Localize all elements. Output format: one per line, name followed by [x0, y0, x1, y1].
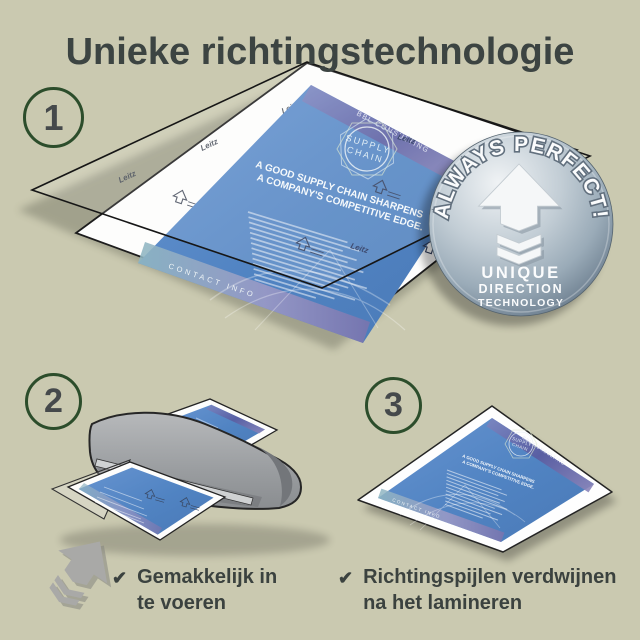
- checklist-item-easy-feed: ✔ Gemakkelijk in te voeren: [112, 564, 294, 616]
- page-title: Unieke richtingstechnologie: [0, 31, 640, 74]
- step-1-number-badge: 1: [23, 87, 84, 148]
- badge-line-technology: TECHNOLOGY: [478, 297, 564, 309]
- step-2-number-badge: 2: [25, 373, 82, 430]
- illustration-layer: Leitz Leitz Leitz BBL CONSULTING CONTACT…: [0, 0, 640, 640]
- checklist-item-label: Gemakkelijk in te voeren: [137, 564, 294, 616]
- badge-line-direction: DIRECTION: [479, 282, 564, 296]
- step-3-number-badge: 3: [365, 377, 422, 434]
- checklist-item-arrows-disappear: ✔ Richtingspijlen verdwijnen na het lami…: [338, 564, 638, 616]
- step-3-number: 3: [384, 386, 403, 425]
- checklist-item-label: Richtingspijlen verdwijnen na het lamine…: [363, 564, 638, 616]
- badge-caption: UNIQUE DIRECTION TECHNOLOGY: [478, 264, 564, 309]
- step-2-number: 2: [44, 382, 63, 421]
- infographic-canvas: Leitz Leitz Leitz BBL CONSULTING CONTACT…: [0, 0, 640, 640]
- badge-line-unique: UNIQUE: [481, 264, 560, 282]
- step-1-number: 1: [43, 97, 63, 139]
- check-icon: ✔: [338, 565, 353, 591]
- check-icon: ✔: [112, 565, 127, 591]
